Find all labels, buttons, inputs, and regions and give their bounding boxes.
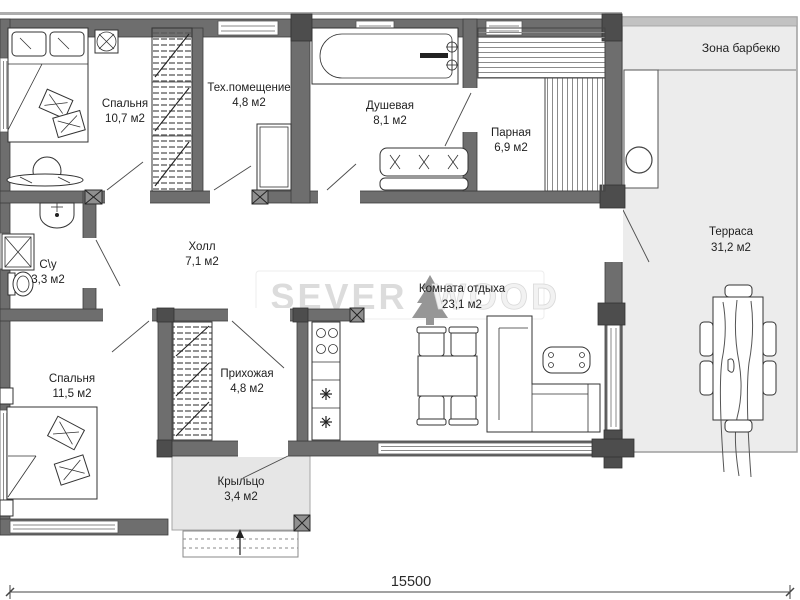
bedroom1-furniture bbox=[7, 28, 192, 191]
tech-room-furniture bbox=[214, 124, 291, 190]
area-steam-room: 6,9 м2 bbox=[494, 142, 527, 154]
label-tech-room: Тех.помещение bbox=[207, 82, 290, 94]
bed-double bbox=[7, 407, 97, 499]
entry-door-swing bbox=[232, 321, 284, 368]
faucet-bar bbox=[420, 53, 448, 58]
sauna-bench-right bbox=[545, 78, 605, 191]
label-terrace: Терраса bbox=[709, 226, 754, 238]
wardrobe-hangers bbox=[152, 28, 192, 191]
toilet bbox=[8, 272, 33, 296]
x-post bbox=[252, 190, 268, 204]
bbq-grill-icon bbox=[626, 147, 652, 173]
wall-middle-lower bbox=[0, 309, 363, 321]
sink bbox=[40, 203, 74, 228]
bedroom2-door-swing bbox=[112, 321, 149, 352]
label-hall: Холл bbox=[188, 241, 215, 253]
x-post bbox=[294, 515, 310, 531]
area-lounge: 23,1 м2 bbox=[442, 299, 482, 311]
label-shower: Душевая bbox=[366, 100, 414, 112]
label-bbq-zone: Зона барбекю bbox=[702, 41, 780, 55]
label-lounge: Комната отдыха bbox=[419, 283, 506, 295]
area-hall: 7,1 м2 bbox=[185, 256, 218, 268]
coffee-table bbox=[543, 347, 590, 373]
area-porch: 3,4 м2 bbox=[224, 491, 257, 503]
bathroom-door-swing bbox=[96, 240, 120, 286]
dining-set bbox=[417, 327, 478, 425]
area-shower: 8,1 м2 bbox=[373, 115, 406, 127]
label-porch: Крыльцо bbox=[218, 476, 265, 488]
corner-sofa bbox=[487, 316, 600, 432]
nightstand bbox=[0, 500, 13, 516]
label-steam-room: Парная bbox=[491, 127, 531, 139]
terrace-area bbox=[622, 17, 797, 477]
lounge-furniture bbox=[312, 316, 600, 440]
boiler-unit bbox=[257, 124, 291, 190]
label-bathroom: С\у bbox=[39, 259, 57, 271]
area-bathroom: 3,3 м2 bbox=[31, 274, 64, 286]
vanity-with-stool bbox=[7, 157, 83, 186]
x-post bbox=[350, 308, 364, 322]
area-bedroom2: 11,5 м2 bbox=[52, 388, 91, 400]
shower-tray bbox=[2, 234, 34, 270]
area-tech-room: 4,8 м2 bbox=[232, 97, 265, 109]
dining-table bbox=[418, 356, 477, 396]
porch-steps bbox=[183, 529, 298, 557]
terrace-top-edge bbox=[622, 17, 797, 26]
kitchen-counter bbox=[312, 322, 340, 440]
label-bedroom1: Спальня bbox=[102, 98, 148, 110]
sauna-bench-top bbox=[478, 28, 605, 78]
wall-bedroom2-entry bbox=[158, 321, 172, 441]
bench bbox=[380, 148, 468, 190]
bedroom1-door-swing bbox=[107, 162, 143, 190]
floor-plan-page: SEVER WOOD bbox=[0, 0, 800, 600]
wall-tech-shower bbox=[291, 19, 310, 203]
vent-symbol-icon bbox=[95, 30, 118, 53]
steam-room-benches bbox=[478, 28, 605, 191]
dimension-value: 15500 bbox=[391, 574, 431, 590]
shower-door-swing bbox=[327, 164, 356, 190]
bbq-counter bbox=[624, 70, 658, 188]
wardrobe-hangers bbox=[173, 322, 212, 440]
porch-area bbox=[172, 456, 310, 557]
bathtub bbox=[312, 28, 458, 84]
tech-door-swing bbox=[214, 166, 251, 190]
label-entry: Прихожая bbox=[220, 368, 273, 380]
area-terrace: 31,2 м2 bbox=[711, 242, 751, 254]
floor-plan-drawing: SEVER WOOD bbox=[0, 0, 800, 600]
area-entry: 4,8 м2 bbox=[230, 383, 263, 395]
area-bedroom1: 10,7 м2 bbox=[105, 113, 145, 125]
bedroom2-furniture bbox=[0, 388, 97, 516]
label-bedroom2: Спальня bbox=[49, 373, 95, 385]
x-post bbox=[85, 190, 102, 204]
dimension-line: 15500 bbox=[6, 574, 794, 599]
nightstand bbox=[0, 388, 13, 404]
wall-entry-kitchen bbox=[297, 321, 308, 441]
bed-double bbox=[8, 28, 88, 142]
wall-wardrobe-tech bbox=[192, 28, 203, 191]
